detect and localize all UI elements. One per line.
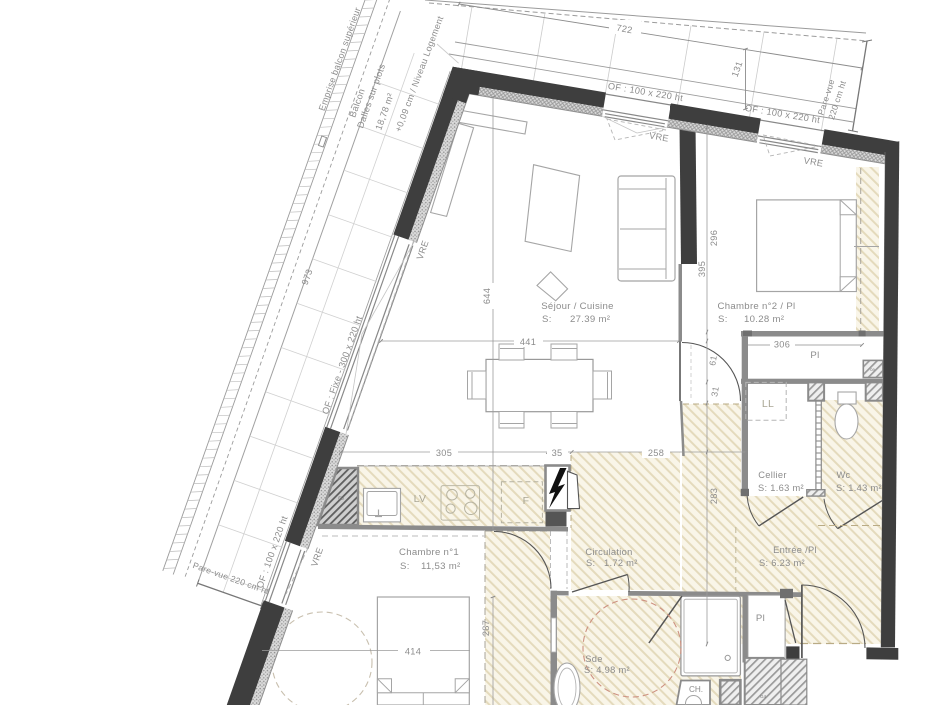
svg-text:283: 283 [709, 488, 719, 504]
svg-text:60: 60 [338, 496, 344, 502]
svg-text:Wc: Wc [836, 470, 850, 480]
svg-text:Entrée /Pl: Entrée /Pl [773, 545, 817, 555]
svg-text:644: 644 [482, 288, 492, 304]
svg-text:CH.: CH. [689, 685, 703, 694]
svg-text:S:: S: [586, 558, 595, 568]
svg-text:296: 296 [709, 230, 719, 246]
svg-text:414: 414 [405, 647, 421, 657]
svg-text:S:: S: [400, 561, 410, 572]
svg-text:S: 1.43 m²: S: 1.43 m² [836, 483, 882, 493]
svg-text:10.28 m²: 10.28 m² [744, 314, 785, 325]
svg-text:ce: ce [870, 367, 875, 372]
svg-text:31: 31 [709, 385, 721, 397]
svg-text:Pl: Pl [756, 613, 765, 624]
svg-text:Séjour / Cuisine: Séjour / Cuisine [541, 301, 614, 312]
svg-text:Chambre n°2 / Pl: Chambre n°2 / Pl [718, 301, 796, 312]
svg-text:F: F [523, 495, 530, 507]
svg-text:306: 306 [774, 340, 790, 350]
svg-text:Sde: Sde [585, 654, 602, 664]
svg-text:S: 4.98 m²: S: 4.98 m² [584, 665, 630, 675]
svg-text:11,53 m²: 11,53 m² [421, 561, 461, 572]
svg-text:35: 35 [552, 448, 563, 458]
svg-text:Cellier: Cellier [758, 470, 786, 480]
svg-text:S: 1.63 m²: S: 1.63 m² [758, 483, 804, 493]
svg-text:LV: LV [414, 493, 427, 505]
svg-text:27.39 m²: 27.39 m² [570, 314, 611, 325]
svg-text:LL: LL [762, 398, 774, 410]
svg-text:S:: S: [718, 314, 728, 325]
svg-text:S:: S: [542, 314, 552, 325]
svg-text:1.72 m²: 1.72 m² [604, 558, 638, 568]
svg-text:61: 61 [707, 354, 719, 366]
svg-text:G4: G4 [760, 694, 767, 699]
svg-text:441: 441 [520, 337, 536, 347]
svg-text:305: 305 [436, 448, 452, 458]
svg-text:395: 395 [697, 261, 707, 277]
svg-text:258: 258 [648, 448, 664, 458]
svg-text:Chambre n°1: Chambre n°1 [399, 547, 459, 558]
svg-text:S: 6.23 m²: S: 6.23 m² [759, 558, 805, 568]
svg-text:287: 287 [481, 620, 491, 636]
svg-text:Pl: Pl [810, 350, 819, 361]
svg-text:Circulation: Circulation [585, 547, 632, 557]
